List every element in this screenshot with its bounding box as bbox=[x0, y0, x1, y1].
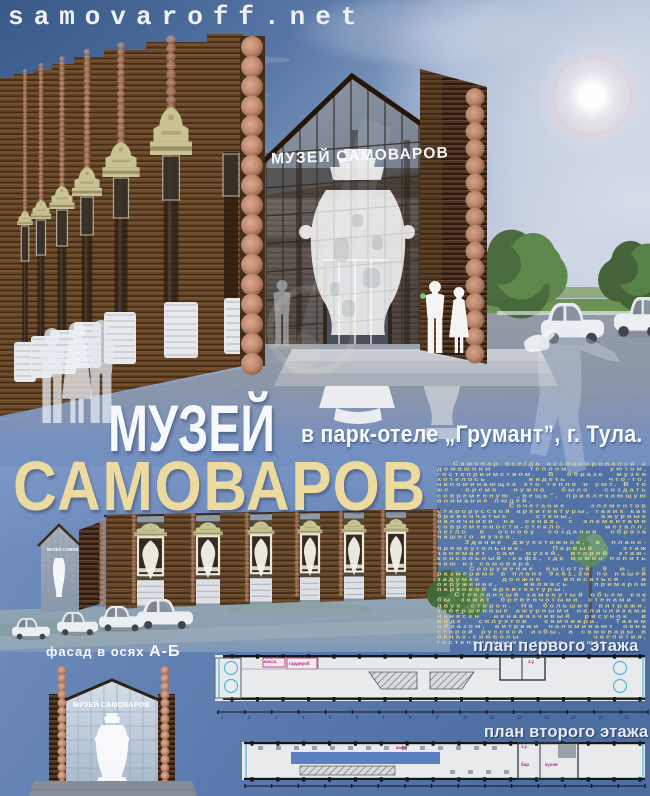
svg-text:15: 15 bbox=[598, 715, 603, 720]
svg-text:МУЗЕЙ САМОВ.: МУЗЕЙ САМОВ. bbox=[47, 547, 80, 552]
svg-text:10: 10 bbox=[463, 715, 468, 720]
svg-text:11: 11 bbox=[490, 715, 495, 720]
svg-text:14: 14 bbox=[571, 715, 576, 720]
svg-text:13: 13 bbox=[544, 715, 549, 720]
svg-text:16: 16 bbox=[624, 715, 629, 720]
svg-text:12: 12 bbox=[517, 715, 522, 720]
